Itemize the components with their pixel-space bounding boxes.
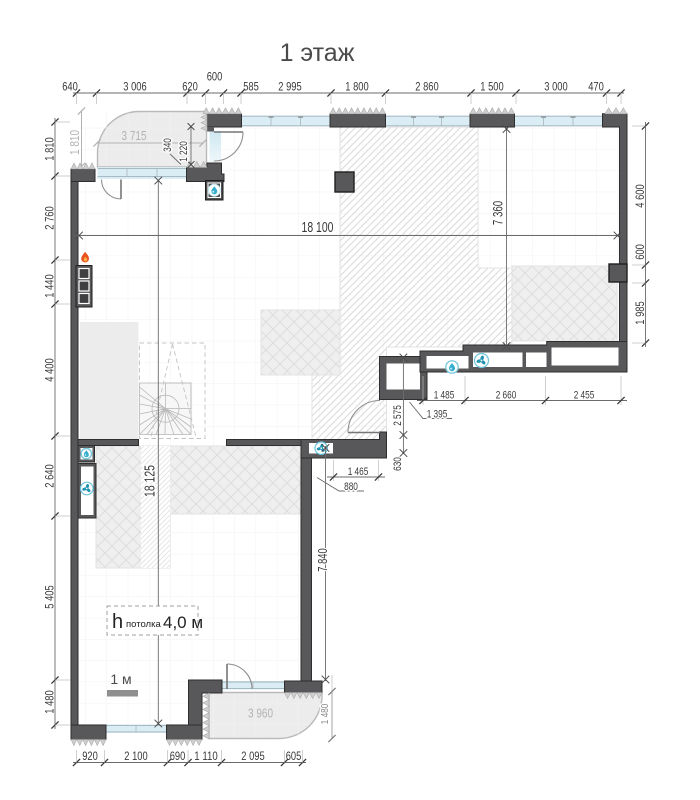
- svg-text:1 395: 1 395: [427, 409, 448, 421]
- svg-text:470: 470: [588, 80, 604, 94]
- svg-text:потолка: потолка: [126, 619, 161, 630]
- svg-text:18 100: 18 100: [302, 220, 334, 236]
- svg-text:1 110: 1 110: [194, 749, 218, 763]
- svg-text:5 405: 5 405: [43, 585, 57, 609]
- svg-text:18 125: 18 125: [143, 465, 159, 497]
- svg-text:620: 620: [182, 80, 198, 94]
- svg-text:1 220: 1 220: [178, 141, 190, 162]
- svg-text:2 760: 2 760: [43, 206, 57, 230]
- svg-text:2 100: 2 100: [124, 749, 148, 763]
- svg-text:2 455: 2 455: [574, 390, 595, 402]
- svg-text:2 575: 2 575: [392, 405, 404, 426]
- svg-text:1 465: 1 465: [348, 466, 369, 478]
- svg-text:4,0 м: 4,0 м: [163, 613, 203, 632]
- svg-text:1 этаж: 1 этаж: [280, 39, 355, 67]
- svg-text:1 810: 1 810: [68, 130, 82, 155]
- svg-text:2 660: 2 660: [496, 390, 517, 402]
- svg-text:1 800: 1 800: [345, 80, 369, 94]
- svg-text:640: 640: [62, 80, 78, 94]
- svg-text:3 715: 3 715: [122, 129, 147, 143]
- svg-text:7 360: 7 360: [491, 201, 506, 225]
- svg-text:2 640: 2 640: [43, 464, 57, 488]
- svg-text:h: h: [112, 611, 123, 633]
- svg-text:585: 585: [243, 80, 259, 94]
- svg-text:880: 880: [344, 481, 358, 493]
- svg-text:1 440: 1 440: [43, 274, 57, 298]
- svg-text:1 810: 1 810: [43, 137, 57, 161]
- svg-text:1 м: 1 м: [110, 671, 131, 687]
- svg-text:605: 605: [286, 749, 302, 763]
- svg-text:3 006: 3 006: [123, 80, 147, 94]
- svg-text:4 600: 4 600: [633, 184, 647, 208]
- svg-text:4 400: 4 400: [43, 358, 57, 382]
- svg-text:2 995: 2 995: [278, 80, 302, 94]
- svg-text:3 000: 3 000: [544, 80, 568, 94]
- svg-text:1 985: 1 985: [633, 301, 647, 325]
- svg-text:3 960: 3 960: [248, 707, 273, 721]
- svg-text:600: 600: [207, 70, 223, 84]
- svg-text:2 860: 2 860: [415, 80, 439, 94]
- svg-text:1 485: 1 485: [434, 390, 455, 402]
- svg-text:2 095: 2 095: [241, 749, 265, 763]
- svg-text:1 480: 1 480: [319, 704, 331, 725]
- svg-text:1 500: 1 500: [480, 80, 504, 94]
- svg-text:920: 920: [82, 749, 98, 763]
- svg-text:340: 340: [162, 138, 174, 152]
- svg-text:7 840: 7 840: [315, 548, 330, 571]
- svg-text:1 480: 1 480: [43, 690, 57, 714]
- svg-text:690: 690: [170, 749, 186, 763]
- svg-text:630: 630: [392, 457, 404, 471]
- svg-text:600: 600: [633, 244, 647, 260]
